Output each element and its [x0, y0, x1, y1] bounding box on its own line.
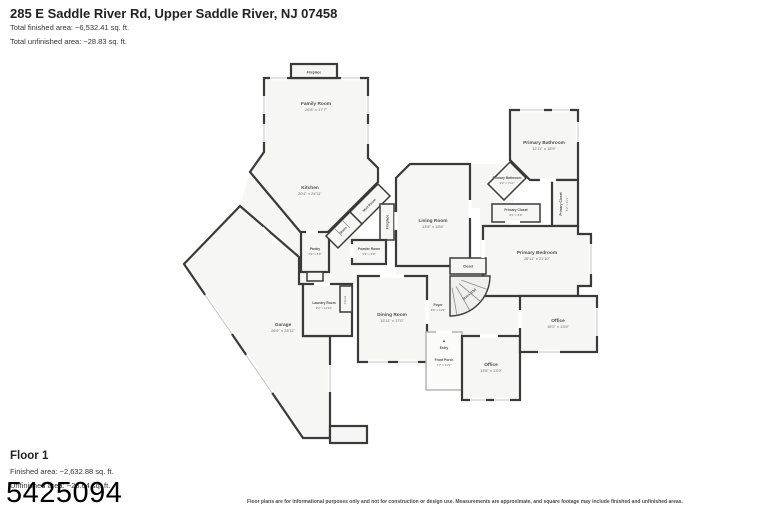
dims-laundry: 9'2" x 12'10"	[316, 306, 332, 310]
floorplan-page: 285 E Saddle River Rd, Upper Saddle Rive…	[0, 0, 768, 512]
label-fireplace-top: Fireplace	[307, 71, 322, 75]
dims-living: 13'6" x 18'6"	[422, 224, 445, 229]
dims-foyer: 8'6" x 11'5"	[431, 308, 446, 312]
entry-arrow-icon: ▲	[442, 338, 446, 343]
dims-primary-closet-a: 8'2" x 6'9"	[509, 213, 522, 217]
label-pantry: Pantry	[310, 247, 320, 251]
dims-primary-bedroom: 26'11" x 21'10"	[524, 256, 551, 261]
dims-primary-closet-b: 5'2" x 11'1"	[565, 197, 569, 212]
floorplan-drawing: Fireplace Family Room 26'8" x 17'7" Kitc…	[0, 0, 768, 512]
label-closet-hall: Closet	[463, 265, 474, 269]
floor-finished-area: Finished area: ~2,632.88 sq. ft.	[10, 467, 114, 476]
disclaimer-text: Floor plans are for informational purpos…	[170, 499, 760, 505]
dims-office-right: 16'2" x 13'5"	[547, 324, 570, 329]
mls-id-watermark: 5425094	[6, 477, 122, 510]
floor-name: Floor 1	[10, 450, 48, 462]
label-primary-closet-b: Primary Closet	[559, 191, 563, 215]
room-living	[396, 164, 470, 266]
dims-dining: 15'11" x 17'0"	[380, 318, 404, 323]
pantry-nook	[307, 272, 323, 281]
dims-front-porch: 7'7" x 11'9"	[437, 363, 452, 367]
dims-pantry: 6'3" x 8'9"	[308, 252, 321, 256]
label-foyer: Foyer	[434, 303, 444, 307]
dims-family: 26'8" x 17'7"	[305, 107, 328, 112]
room-primary-bedroom	[483, 226, 591, 296]
label-primary-closet-a: Primary Closet	[504, 208, 528, 212]
label-fireplace-living: Fireplace	[386, 215, 390, 230]
dims-office-center: 13'6" x 13'9"	[480, 368, 503, 373]
dims-primary-bath: 12'11" x 18'9"	[532, 146, 556, 151]
label-closet-laundry: Closet	[343, 296, 347, 305]
dims-kitchen: 20'4" x 24'11"	[298, 191, 322, 196]
dims-powder: 5'9" x 6'8"	[362, 252, 375, 256]
label-primary-bath-small: Primary Bathroom	[493, 176, 522, 180]
label-entry: Entry	[440, 346, 449, 350]
label-powder: Powder Room	[358, 247, 380, 251]
garage-step	[330, 426, 367, 443]
label-laundry: Laundry Room	[312, 301, 335, 305]
dims-garage: 26'6" x 28'11"	[271, 328, 295, 333]
label-front-porch: Front Porch	[435, 358, 454, 362]
dims-primary-bath-small: 9'2" x 7'10"	[500, 181, 515, 185]
